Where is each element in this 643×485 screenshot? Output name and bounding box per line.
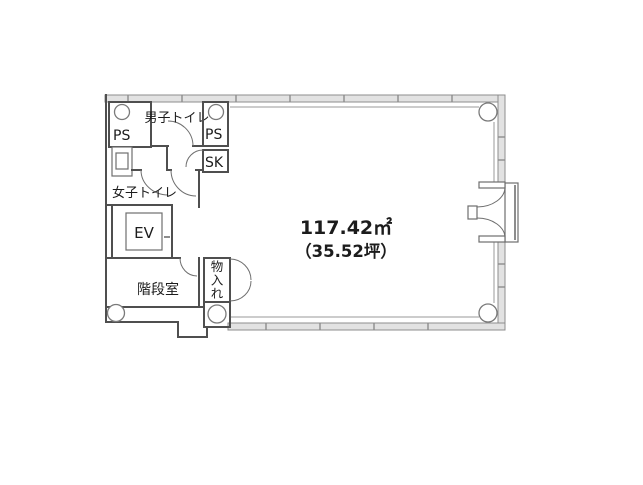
right-window-wall-lower (498, 241, 505, 330)
door-leaf-top (479, 182, 505, 188)
door-leaf-bottom (479, 236, 505, 242)
washbasin-bowl (116, 153, 128, 169)
womens-toilet-label: 女子トイレ (112, 185, 177, 201)
floor-plan-canvas: PS 男子トイレ PS SK 女子トイレ EV (0, 0, 643, 485)
stairwell-door-arc (180, 258, 197, 276)
double-entry-door (468, 182, 518, 242)
column-icon (208, 305, 226, 323)
mens-toilet-label: 男子トイレ (144, 111, 209, 126)
area-label-tsubo: （35.52坪） (295, 241, 397, 261)
area-label-sqm: 117.42㎡ (300, 216, 392, 239)
main-area-label: 117.42㎡ （35.52坪） (295, 216, 397, 261)
storage-label: 物入れ (211, 259, 224, 301)
top-window-wall (105, 95, 505, 102)
ps-left-label: PS (113, 128, 130, 144)
right-window-wall-upper (498, 95, 505, 183)
window-mullion-ticks (128, 95, 505, 330)
door-frame (505, 183, 518, 242)
stairwell-room: 階段室 (106, 258, 199, 307)
storage-door-arc-bottom (230, 281, 251, 301)
slop-sink-room: SK (186, 150, 228, 172)
column-icon (479, 304, 497, 322)
stairwell-label: 階段室 (137, 281, 179, 298)
elevator-shaft: EV (112, 205, 172, 258)
storage-closet: 物入れ (204, 258, 251, 302)
elevator-label: EV (134, 224, 154, 242)
pipe-shaft-icon (209, 105, 224, 120)
column-icon (479, 103, 497, 121)
column-icon (108, 305, 125, 322)
womens-toilet-room: 女子トイレ (106, 146, 203, 205)
storage-door-arc-top (230, 259, 251, 280)
ps-right-label: PS (205, 127, 222, 143)
window-sill-lines (230, 107, 494, 317)
door-meeting-stub (468, 206, 477, 219)
mens-toilet-room: 男子トイレ (144, 102, 209, 146)
pipe-shaft-icon (115, 105, 130, 120)
entry-door-arc-top (477, 187, 505, 207)
slop-sink-door-arc (186, 150, 203, 167)
floor-plan-page: PS 男子トイレ PS SK 女子トイレ EV (0, 0, 643, 485)
entry-door-arc-bottom (477, 218, 505, 238)
bottom-window-wall (228, 323, 505, 330)
slop-sink-label: SK (205, 155, 224, 171)
